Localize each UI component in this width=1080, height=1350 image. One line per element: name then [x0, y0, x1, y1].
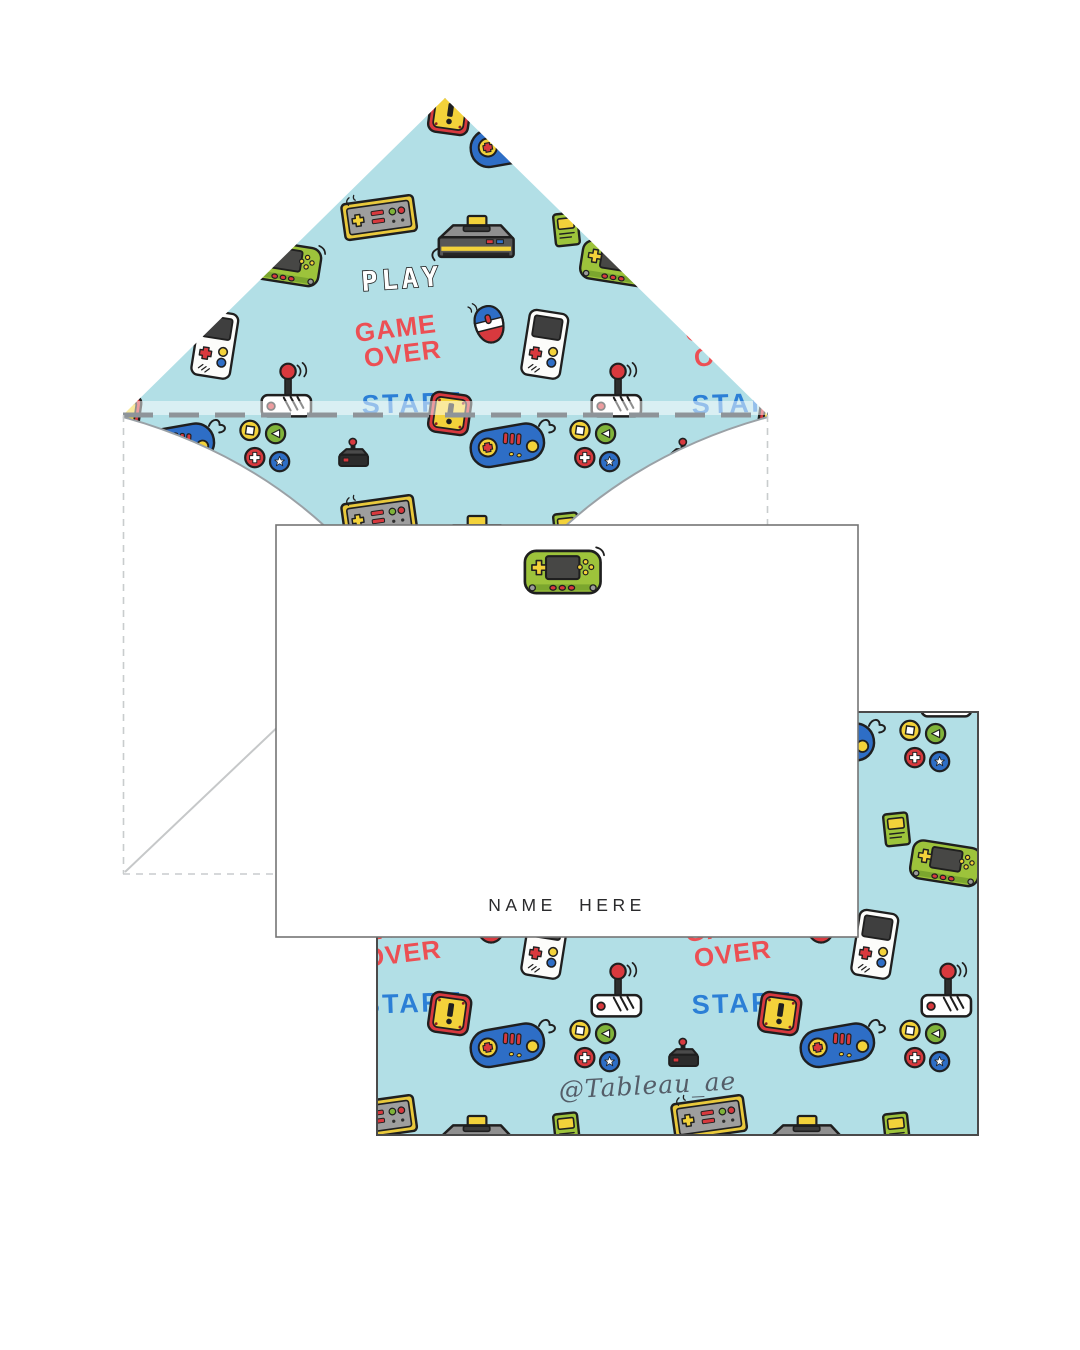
front-card-console-icon: [525, 547, 604, 593]
envelope-flap-liner: [123, 98, 768, 415]
front-card: NAME HERE: [276, 525, 858, 937]
stationery-mockup: GAME OVER START PLAY: [0, 0, 1080, 1350]
name-placeholder-text: NAME HERE: [488, 895, 646, 915]
